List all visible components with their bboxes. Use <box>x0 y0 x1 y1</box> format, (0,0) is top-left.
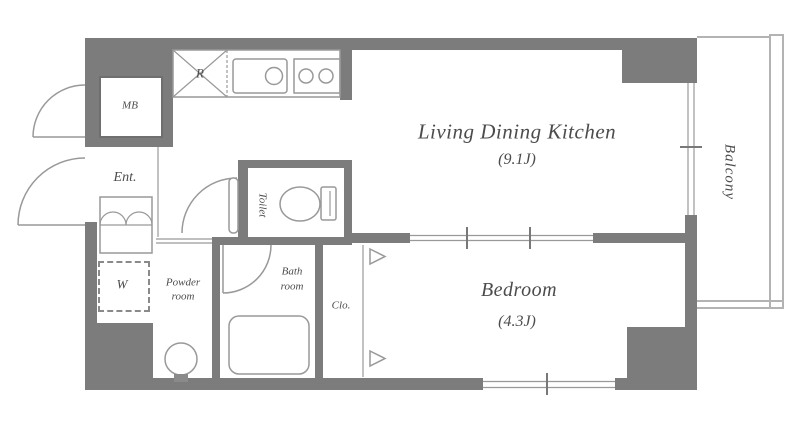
toilet-label: Toilet <box>257 193 268 218</box>
ldk-size-label: (9.1J) <box>498 152 536 168</box>
bedroom-window-icon <box>483 373 615 395</box>
shoe-cabinet-icon <box>100 197 152 253</box>
bedroom-label: Bedroom <box>481 280 557 300</box>
entrance-label: Ent. <box>114 171 137 185</box>
closet-arrow-top-icon <box>370 249 385 264</box>
refrigerator-label: R <box>196 67 204 80</box>
meter-box-door-icon <box>33 85 85 137</box>
ldk-window-icon <box>680 83 702 215</box>
balcony-label: Balcony <box>722 144 737 200</box>
closet-arrow-bottom-icon <box>370 351 385 366</box>
entrance-door-icon <box>18 158 85 225</box>
powder-doorway-icon <box>156 239 212 243</box>
bath-room-label-1: Bath <box>282 267 303 278</box>
balcony-outline <box>697 35 783 308</box>
ldk-label: Living Dining Kitchen <box>418 122 616 143</box>
bath-room-label-2: room <box>281 282 304 293</box>
washing-machine-label: W <box>117 278 128 291</box>
toilet-icon <box>280 187 336 221</box>
partition-sliding-door-icon <box>410 227 593 249</box>
bathtub-icon <box>229 316 309 374</box>
bedroom-size-label: (4.3J) <box>498 314 536 330</box>
fixtures-layer <box>0 0 800 428</box>
powder-sink-icon <box>165 343 197 382</box>
bath-door-icon <box>223 245 271 293</box>
powder-room-label-1: Powder <box>166 278 200 289</box>
floor-plan: MB R Ent. W Powder room Bath room Clo. T… <box>0 0 800 428</box>
meter-box-label: MB <box>122 101 138 112</box>
closet-label: Clo. <box>332 301 351 312</box>
powder-room-label-2: room <box>172 292 195 303</box>
closet-door-line <box>363 245 385 377</box>
hall-door-icon <box>182 178 238 233</box>
